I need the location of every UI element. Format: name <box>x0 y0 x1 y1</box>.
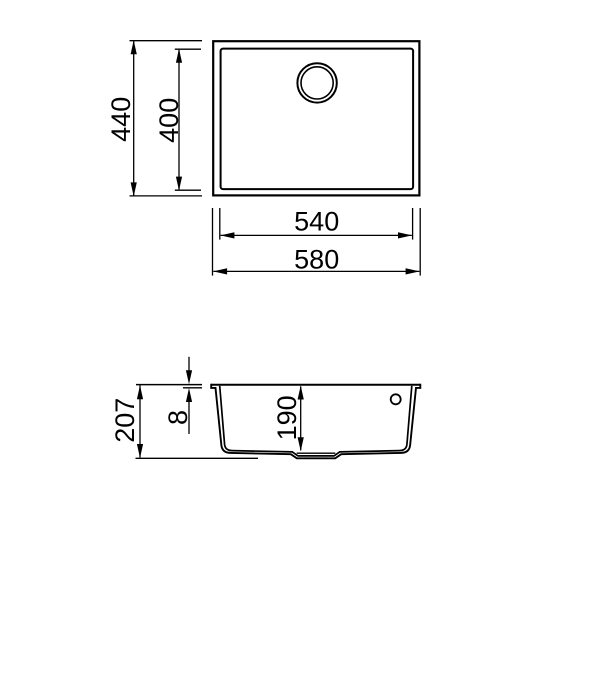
svg-text:8: 8 <box>163 410 193 425</box>
svg-text:580: 580 <box>294 244 339 274</box>
svg-text:400: 400 <box>154 98 184 143</box>
svg-text:540: 540 <box>294 206 339 236</box>
svg-text:190: 190 <box>272 395 302 440</box>
svg-text:440: 440 <box>106 97 136 142</box>
svg-text:207: 207 <box>110 398 140 443</box>
